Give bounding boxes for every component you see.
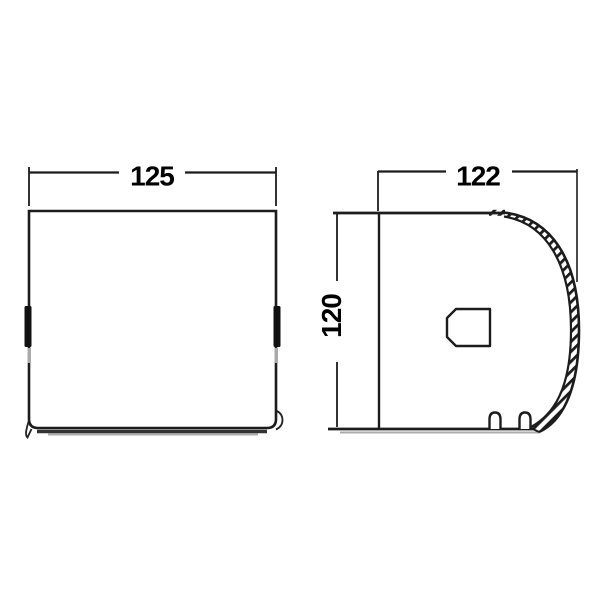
dim-120-label: 120 xyxy=(316,294,347,338)
side-curve-outer xyxy=(504,213,579,433)
drawing-svg: 125 xyxy=(0,0,600,600)
dimension-side-width: 122 xyxy=(378,161,577,212)
technical-drawing-page: 125 xyxy=(0,0,600,600)
dimension-side-height: 120 xyxy=(316,214,347,427)
side-view: 122 120 xyxy=(316,161,579,433)
front-right-hinge-bar xyxy=(274,306,281,347)
front-left-hinge-shadow xyxy=(28,348,32,363)
side-spindle-window xyxy=(447,309,490,346)
dim-125-label: 125 xyxy=(130,161,174,192)
dimension-front-width: 125 xyxy=(29,161,276,207)
side-tab-left xyxy=(490,413,501,430)
front-view: 125 xyxy=(25,161,283,438)
front-right-hinge-shadow xyxy=(275,348,279,363)
front-left-hinge-bar xyxy=(25,306,32,347)
dim-122-label: 122 xyxy=(456,161,500,192)
front-view-outline xyxy=(29,211,276,428)
side-tab-right xyxy=(520,413,531,430)
